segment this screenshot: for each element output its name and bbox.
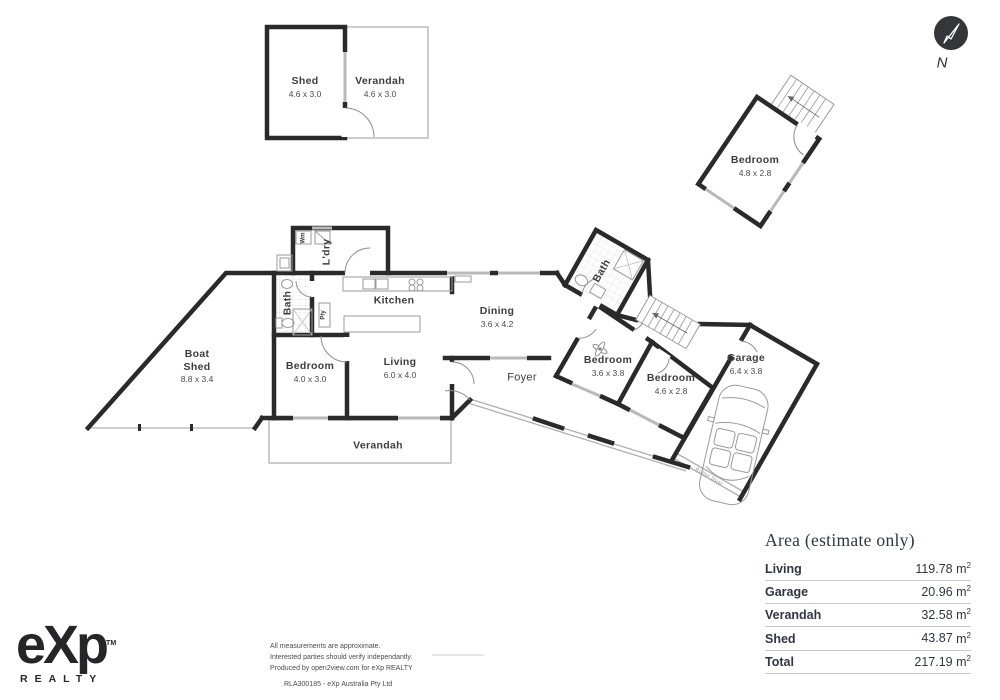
room-label-verandah-main: Verandah — [353, 440, 403, 453]
floorplan-page: Shed 4.6 x 3.0 Verandah 4.6 x 3.0 Bedroo… — [0, 0, 1000, 700]
exp-realty-logo: eXpTM REALTY — [16, 618, 116, 685]
rla-license-text: RLA300185 - eXp Australia Pty Ltd — [284, 681, 392, 688]
cooktop-icon — [409, 285, 415, 291]
trademark: TM — [106, 640, 116, 647]
room-label-living: Living 6.0 x 4.0 — [384, 356, 417, 380]
area-row-living: Living 119.78 m2 — [765, 558, 971, 581]
room-label-boat-shed: Boat Shed 8.8 x 3.4 — [181, 348, 214, 384]
stairs-icon — [636, 295, 700, 348]
room-label-bedroom-left: Bedroom 4.0 x 3.0 — [286, 360, 334, 384]
thin-outlines — [88, 399, 744, 497]
car-icon — [690, 381, 777, 510]
north-arrow-icon — [934, 16, 968, 50]
unit: m2 — [956, 632, 971, 646]
room-label-verandah-tl: Verandah 4.6 x 3.0 — [355, 75, 405, 99]
unit: m2 — [956, 655, 971, 669]
room-label-shed-tl: Shed 4.6 x 3.0 — [289, 75, 322, 99]
room-label-kitchen: Kitchen — [374, 295, 415, 308]
label-pantry: Pty — [320, 310, 327, 319]
area-table: Area (estimate only) Living 119.78 m2 Ga… — [765, 530, 971, 674]
area-row-shed: Shed 43.87 m2 — [765, 627, 971, 650]
toilet-icon — [282, 319, 294, 328]
room-label-bedroom-tr: Bedroom 4.8 x 2.8 — [731, 154, 779, 178]
room-label-bedroom-mid: Bedroom 3.6 x 3.8 — [584, 354, 632, 378]
sink-icon — [282, 280, 293, 289]
room-label-bedroom-right: Bedroom 4.6 x 2.8 — [647, 372, 695, 396]
north-label: N — [937, 55, 948, 72]
area-row-total: Total 217.19 m2 — [765, 651, 971, 674]
area-table-title: Area (estimate only) — [765, 530, 971, 551]
room-label-bath-left: Bath — [282, 291, 295, 316]
room-label-dining: Dining 3.6 x 4.2 — [480, 305, 514, 329]
label-washing-machine: Wm — [300, 233, 307, 244]
unit: m2 — [956, 608, 971, 622]
unit: m2 — [956, 585, 971, 599]
post — [190, 424, 193, 431]
upper-bedroom-structure — [698, 66, 840, 226]
cooktop-icon — [409, 279, 415, 285]
kitchen-sink-icon — [376, 279, 388, 289]
cooktop-icon — [417, 279, 423, 285]
cooktop-icon — [417, 285, 423, 291]
island-bench — [344, 316, 420, 332]
disclaimer-text: All measurements are approximate. Intere… — [270, 642, 413, 675]
room-label-garage: Garage 6.4 x 3.8 — [727, 352, 765, 376]
trough-icon — [277, 255, 292, 271]
kitchen-bench — [343, 277, 452, 291]
post — [138, 424, 141, 431]
toilet-icon — [276, 318, 282, 328]
unit: m2 — [956, 562, 971, 576]
area-row-garage: Garage 20.96 m2 — [765, 581, 971, 604]
room-label-foyer: Foyer — [507, 371, 537, 384]
wall-openings — [293, 273, 741, 425]
appliance — [455, 276, 471, 282]
area-row-verandah: Verandah 32.58 m2 — [765, 604, 971, 627]
kitchen-sink-icon — [363, 279, 375, 289]
room-label-laundry: L'dry — [321, 239, 334, 266]
